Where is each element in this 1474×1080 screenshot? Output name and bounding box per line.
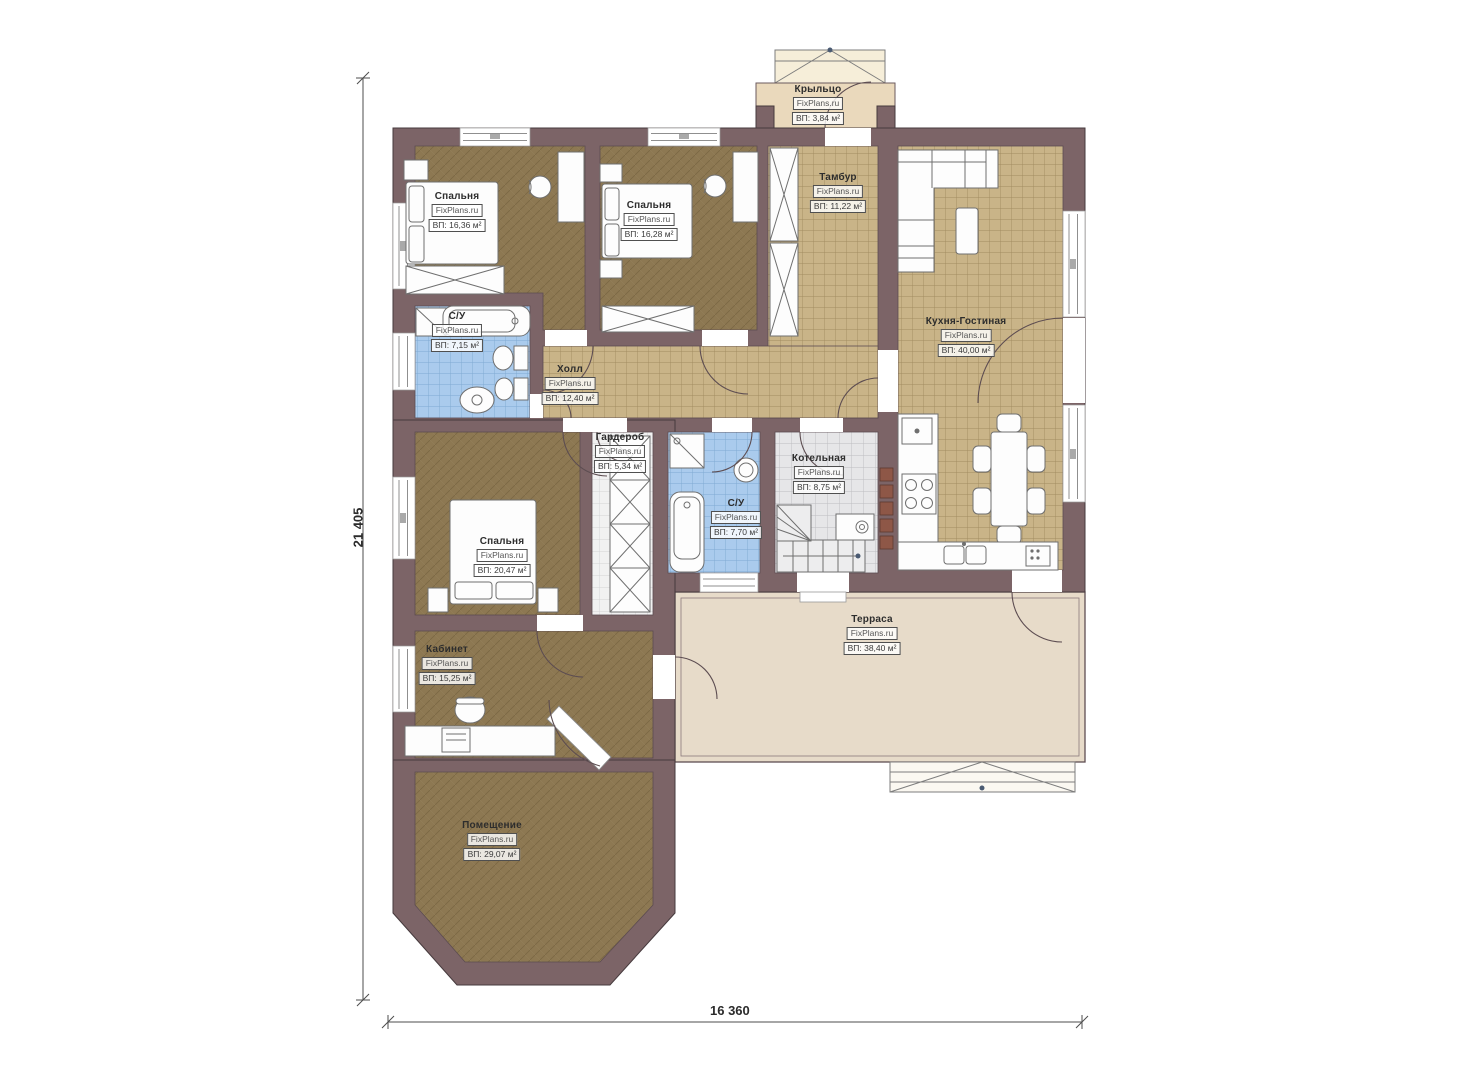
terrace-deck bbox=[675, 592, 1085, 792]
appliance-column bbox=[880, 468, 893, 549]
porch bbox=[756, 48, 895, 129]
floor-plan: Крыльцо FixPlans.ru ВП: 3,84 м² Спальня … bbox=[0, 0, 1474, 1080]
floor-plan-drawing bbox=[0, 0, 1474, 1080]
dimension-height-label: 21 405 bbox=[350, 508, 365, 548]
dimension-width-label: 16 360 bbox=[710, 1003, 750, 1018]
